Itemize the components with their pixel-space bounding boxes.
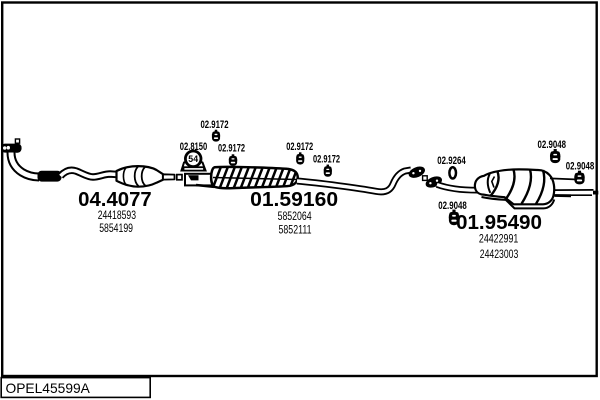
svg-text:24423003: 24423003 (480, 247, 519, 261)
svg-text:01.59160: 01.59160 (250, 189, 338, 211)
svg-text:02.9172: 02.9172 (218, 143, 245, 155)
svg-text:5854199: 5854199 (99, 221, 133, 235)
svg-text:01.95490: 01.95490 (456, 212, 542, 234)
svg-text:24418593: 24418593 (98, 208, 137, 222)
svg-text:5852111: 5852111 (279, 223, 312, 237)
svg-text:02.9264: 02.9264 (437, 155, 466, 167)
svg-text:02.9172: 02.9172 (201, 119, 229, 131)
svg-text:02.9172: 02.9172 (286, 141, 313, 153)
svg-text:OPEL45599A: OPEL45599A (6, 381, 91, 396)
svg-text:5852064: 5852064 (278, 209, 312, 223)
svg-text:02.9172: 02.9172 (313, 153, 340, 165)
svg-text:02.8150: 02.8150 (180, 141, 208, 153)
svg-text:24422991: 24422991 (479, 232, 519, 246)
svg-text:02.9048: 02.9048 (538, 139, 567, 151)
svg-text:54: 54 (188, 154, 198, 164)
